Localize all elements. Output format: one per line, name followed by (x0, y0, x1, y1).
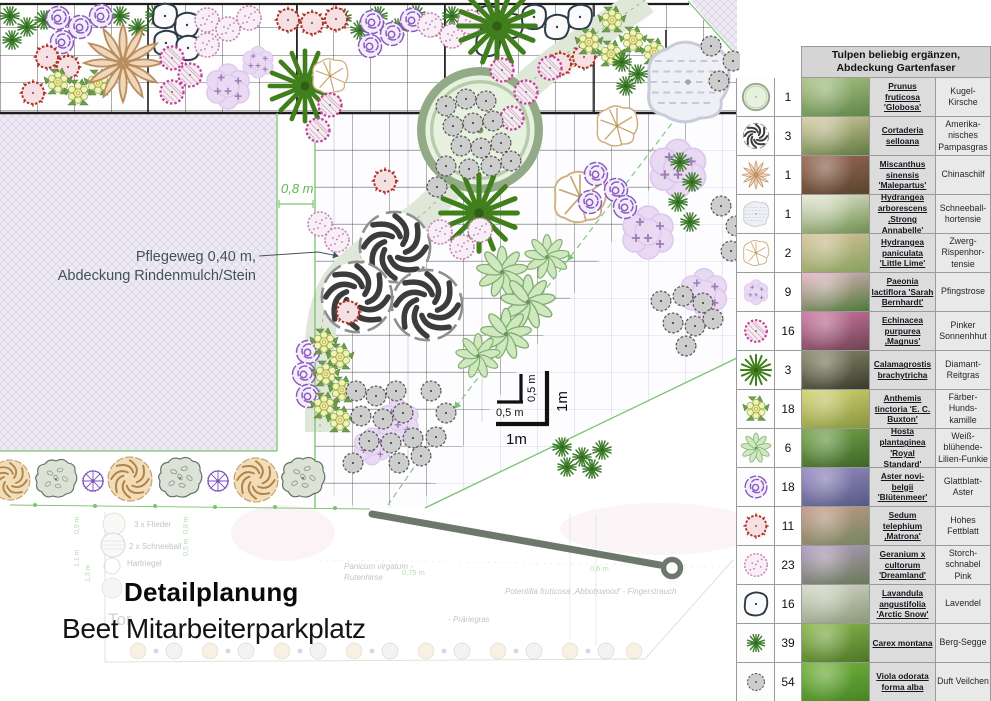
plant-photo (802, 546, 870, 584)
plant-latin-name: Paeonia lactiflora 'Sarah Bernhardt' (870, 273, 936, 311)
plant-latin-name: Geranium x cultorum 'Dreamland' (870, 546, 936, 584)
plant-photo (802, 78, 870, 116)
overview-label-hartriegel: Hartriegel (127, 559, 162, 568)
plant-symbol-prunus (737, 78, 775, 116)
overview-label-rutenhirse: Rutenhirse (344, 573, 383, 582)
plant-symbol-geranium (737, 546, 775, 584)
plant-latin-name: Anthemis tinctoria 'E. C. Buxton' (870, 390, 936, 428)
plant-common-name: Weiß-blühende-Lilien-Funkie (936, 429, 990, 467)
plant-quantity: 1 (775, 78, 802, 116)
plant-symbol-carex (737, 624, 775, 662)
plant-latin-name: Miscanthus sinensis 'Malepartus' (870, 156, 936, 194)
plant-symbol-sedum (737, 507, 775, 545)
plant-symbol-echinacea (737, 312, 775, 350)
overview-plant-row (130, 643, 642, 659)
plant-quantity: 6 (775, 429, 802, 467)
plant-common-name: Hohes Fettblatt (936, 507, 990, 545)
table-header-row: Tulpen beliebig ergänzen, Abdeckung Gart… (736, 46, 991, 78)
plant-table-row: 18Aster novi-belgii 'Blütenmeer'Glattbla… (737, 468, 990, 507)
plant-quantity: 16 (775, 312, 802, 350)
plant-photo (802, 156, 870, 194)
plant-latin-name: Sedum telephium ,Matrona' (870, 507, 936, 545)
plant-photo (802, 273, 870, 311)
overview-dim-09: 0,9 m (74, 516, 81, 534)
plant-symbol-lavandula (737, 585, 775, 623)
plant-photo (802, 312, 870, 350)
plant-common-name: Berg-Segge (936, 624, 990, 662)
plant-latin-name: Cortaderia selloana (870, 117, 936, 155)
plant-table-row: 2Hydrangea paniculata 'Little Lime'Zwerg… (737, 234, 990, 273)
plant-photo (802, 351, 870, 389)
plant-symbol-paeonia (737, 273, 775, 311)
plant-latin-name: Carex montana (870, 624, 936, 662)
overview-dim-06: 0,6 m (590, 564, 609, 573)
plant-photo (802, 624, 870, 662)
plant-table-row: 54Viola odorata forma albaDuft Veilchen (737, 663, 990, 701)
plant-table-row: 3Calamagrostis brachytrichaDiamant-Reitg… (737, 351, 990, 390)
plant-common-name: Amerika-nisches Pampasgras (936, 117, 990, 155)
plant-latin-name: Hydrangea paniculata 'Little Lime' (870, 234, 936, 272)
table-header-spacer (736, 46, 801, 78)
table-rows: 1Prunus fruticosa 'Globosa'Kugel-Kirsche… (736, 78, 991, 701)
overview-label-flieder: 3 x Flieder (134, 520, 172, 529)
table-header-line1: Tulpen beliebig ergänzen, (802, 49, 990, 62)
plant-quantity: 23 (775, 546, 802, 584)
plant-table-row: 23Geranium x cultorum 'Dreamland'Storch-… (737, 546, 990, 585)
plant-symbol-hosta (737, 429, 775, 467)
plant-symbol-anthemis (737, 390, 775, 428)
plant-photo (802, 390, 870, 428)
plant-table-row: 39Carex montanaBerg-Segge (737, 624, 990, 663)
plant-photo (802, 429, 870, 467)
scale-small-h: 0,5 m (496, 407, 524, 419)
page: 3 x Flieder 2 x Schneeball Hartriegel To… (0, 0, 991, 701)
plant-common-name: Färber-Hunds-kamille (936, 390, 990, 428)
plant-quantity: 18 (775, 390, 802, 428)
annotation-line2: Abdeckung Rindenmulch/Stein (58, 268, 256, 284)
strip-dimension-label: 0,8 m (281, 181, 314, 196)
plant-common-name: Storch-schnabel Pink (936, 546, 990, 584)
plant-photo (802, 117, 870, 155)
plant-quantity: 16 (775, 585, 802, 623)
plant-latin-name: Echinacea purpurea ,Magnus' (870, 312, 936, 350)
table-header-line2: Abdeckung Gartenfaser (802, 62, 990, 75)
plant-table-row: 1Hydrangea arborescens ,Strong Annabelle… (737, 195, 990, 234)
overview-dim-11: 1,1 m (74, 549, 81, 567)
plant-quantity: 39 (775, 624, 802, 662)
plant-quantity: 3 (775, 117, 802, 155)
plant-table-row: 6Hosta plantaginea 'Royal Standard'Weiß-… (737, 429, 990, 468)
plant-common-name: Glattblatt-Aster (936, 468, 990, 506)
plant-table-row: 11Sedum telephium ,Matrona'Hohes Fettbla… (737, 507, 990, 546)
plant-common-name: Pinker Sonnenhhut (936, 312, 990, 350)
page-subtitle: Beet Mitarbeiterparkplatz (62, 613, 366, 644)
plant-common-name: Zwerg-Rispenhor-tensie (936, 234, 990, 272)
plant-quantity: 9 (775, 273, 802, 311)
plant-table-row: 16Lavandula angustifolia 'Arctic Snow'La… (737, 585, 990, 624)
plant-table: Tulpen beliebig ergänzen, Abdeckung Gart… (736, 46, 991, 701)
garden-plan-drawing: 3 x Flieder 2 x Schneeball Hartriegel To… (0, 0, 740, 701)
plant-table-row: 18Anthemis tinctoria 'E. C. Buxton'Färbe… (737, 390, 990, 429)
overview-label-schneeball: 2 x Schneeball (129, 542, 182, 551)
plant-common-name: Duft Veilchen (936, 663, 990, 701)
plant-quantity: 11 (775, 507, 802, 545)
plant-common-name: Diamant-Reitgras (936, 351, 990, 389)
plant-photo (802, 507, 870, 545)
plant-symbol-hydrangea_pan (737, 234, 775, 272)
plant-photo (802, 195, 870, 233)
plant-photo (802, 663, 870, 701)
scale-large-v: 1m (554, 391, 571, 412)
plant-common-name: Kugel-Kirsche (936, 78, 990, 116)
plant-photo (802, 585, 870, 623)
scale-large-h: 1m (506, 431, 527, 448)
table-header: Tulpen beliebig ergänzen, Abdeckung Gart… (801, 46, 991, 78)
plant-quantity: 18 (775, 468, 802, 506)
plant-symbol-aster (737, 468, 775, 506)
plant-table-row: 16Echinacea purpurea ,Magnus'Pinker Sonn… (737, 312, 990, 351)
overview-dim-08: 0,8 m (183, 516, 190, 534)
plant-quantity: 1 (775, 195, 802, 233)
scale-small-v: 0,5 m (526, 374, 538, 402)
plant-latin-name: Hydrangea arborescens ,Strong Annabelle' (870, 195, 936, 233)
plant-photo (802, 234, 870, 272)
overview-label-praeriegras: - Präriegras (448, 615, 490, 624)
strip-dimension: 0,8 m (279, 181, 314, 208)
plant-common-name: Chinaschilf (936, 156, 990, 194)
plant-symbol-calamagrostis (737, 351, 775, 389)
plant-table-row: 9Paeonia lactiflora 'Sarah Bernhardt'Pfi… (737, 273, 990, 312)
plant-symbol-cortaderia (737, 117, 775, 155)
plant-latin-name: Lavandula angustifolia 'Arctic Snow' (870, 585, 936, 623)
plant-table-row: 3Cortaderia selloanaAmerika-nisches Pamp… (737, 117, 990, 156)
plant-latin-name: Prunus fruticosa 'Globosa' (870, 78, 936, 116)
overview-dim-13: 1,3 m (85, 564, 92, 582)
plant-photo (802, 468, 870, 506)
page-title: Detailplanung (124, 577, 299, 607)
plant-latin-name: Calamagrostis brachytricha (870, 351, 936, 389)
annotation-line1: Pflegeweg 0,40 m, (136, 249, 256, 265)
plant-symbol-viola (737, 663, 775, 701)
plant-quantity: 1 (775, 156, 802, 194)
plant-table-row: 1Miscanthus sinensis 'Malepartus'Chinasc… (737, 156, 990, 195)
plant-latin-name: Aster novi-belgii 'Blütenmeer' (870, 468, 936, 506)
plant-latin-name: Hosta plantaginea 'Royal Standard' (870, 429, 936, 467)
plant-common-name: Pfingstrose (936, 273, 990, 311)
plant-common-name: Schneeball-hortensie (936, 195, 990, 233)
plant-quantity: 2 (775, 234, 802, 272)
plant-common-name: Lavendel (936, 585, 990, 623)
plant-table-row: 1Prunus fruticosa 'Globosa'Kugel-Kirsche (737, 78, 990, 117)
plant-symbol-hydrangea_arb (737, 195, 775, 233)
overview-label-potentilla: Potentilla fruticosa ,Abbotswood' - Fing… (505, 587, 677, 596)
overview-dim-05: 0,5 m (183, 538, 190, 556)
plant-quantity: 3 (775, 351, 802, 389)
plant-latin-name: Viola odorata forma alba (870, 663, 936, 701)
plant-symbol-miscanthus (737, 156, 775, 194)
overview-dim-075: 0,75 m (402, 568, 425, 577)
plant-quantity: 54 (775, 663, 802, 701)
